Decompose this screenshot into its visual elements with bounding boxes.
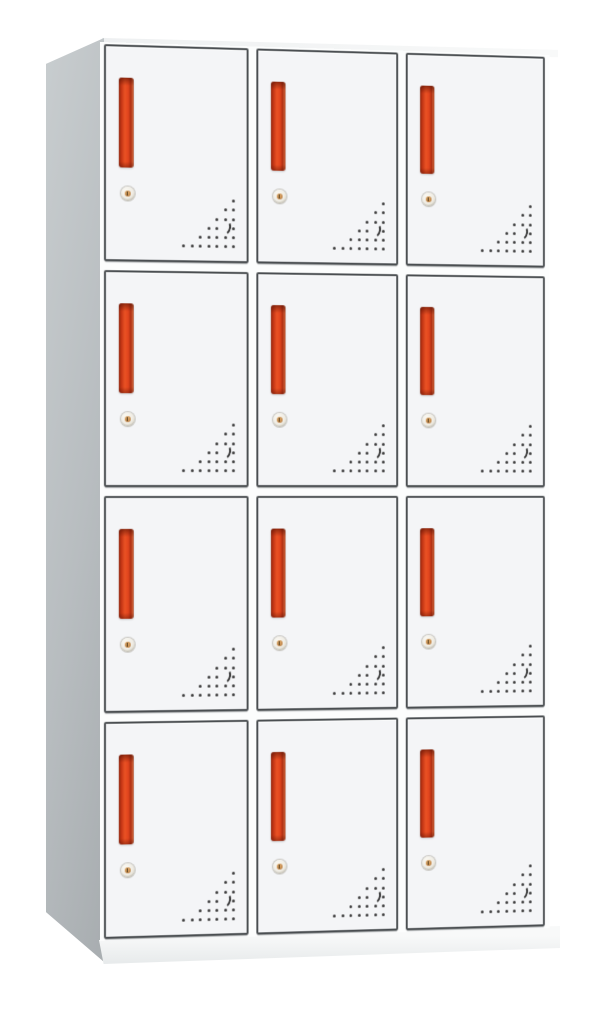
vent-hole-icon	[489, 690, 492, 693]
vent-hole-icon	[358, 469, 361, 472]
door-handle-icon	[420, 749, 434, 837]
vent-hole-icon	[349, 683, 352, 686]
vent-hole-large-icon	[516, 224, 529, 241]
vent-holes	[481, 425, 533, 474]
door-handle-icon	[420, 86, 434, 174]
vent-hole-icon	[232, 899, 235, 902]
vent-hole-icon	[199, 909, 202, 912]
vent-hole-icon	[182, 469, 185, 472]
vent-hole-icon	[215, 236, 218, 239]
vent-hole-icon	[513, 470, 516, 473]
vent-hole-icon	[374, 683, 377, 686]
vent-hole-icon	[489, 470, 492, 473]
keyhole-icon	[277, 417, 283, 423]
cam-lock-icon	[422, 856, 435, 870]
vent-hole-icon	[349, 905, 352, 908]
vent-hole-icon	[382, 682, 385, 685]
vent-hole-icon	[374, 877, 377, 880]
vent-hole-icon	[505, 249, 508, 252]
vent-hole-icon	[513, 241, 516, 244]
vent-hole-icon	[382, 887, 385, 890]
keyhole-icon	[277, 864, 283, 870]
vent-hole-icon	[182, 694, 185, 697]
vent-hole-icon	[349, 461, 352, 464]
vent-hole-icon	[366, 452, 369, 455]
vent-hole-icon	[529, 689, 532, 692]
vent-holes	[333, 201, 386, 251]
vent-hole-icon	[208, 227, 211, 230]
vent-hole-icon	[366, 674, 369, 677]
vent-hole-icon	[497, 461, 500, 464]
vent-hole-icon	[374, 461, 377, 464]
vent-hole-icon	[208, 451, 211, 454]
vent-hole-icon	[374, 211, 377, 214]
locker-cabinet-photo	[0, 0, 605, 1009]
vent-hole-icon	[224, 469, 227, 472]
vent-hole-icon	[513, 910, 516, 913]
vent-hole-icon	[232, 442, 235, 445]
vent-hole-icon	[481, 249, 484, 252]
vent-hole-icon	[366, 230, 369, 233]
vent-hole-icon	[215, 918, 218, 921]
vent-hole-icon	[382, 469, 385, 472]
vent-hole-icon	[358, 674, 361, 677]
vent-hole-icon	[529, 425, 532, 428]
vent-hole-icon	[208, 245, 211, 248]
vent-hole-icon	[232, 208, 235, 211]
locker-door-r2c2	[256, 272, 398, 487]
vent-hole-icon	[191, 694, 194, 697]
vent-hole-icon	[232, 460, 235, 463]
cabinet-side-panel	[46, 38, 104, 962]
vent-hole-icon	[529, 883, 532, 886]
vent-hole-icon	[215, 891, 218, 894]
vent-hole-icon	[215, 909, 218, 912]
vent-hole-icon	[382, 230, 385, 233]
vent-hole-icon	[382, 452, 385, 455]
locker-door-r1c3	[406, 53, 545, 268]
vent-hole-icon	[366, 914, 369, 917]
vent-hole-icon	[382, 913, 385, 916]
door-handle-icon	[271, 529, 286, 618]
vent-hole-icon	[382, 674, 385, 677]
keyhole-icon	[125, 190, 131, 196]
keyhole-icon	[277, 193, 283, 199]
cam-lock-icon	[273, 189, 287, 203]
vent-hole-icon	[215, 460, 218, 463]
vent-hole-icon	[224, 693, 227, 696]
vent-hole-icon	[191, 918, 194, 921]
vent-hole-icon	[208, 469, 211, 472]
vent-hole-large-icon	[369, 888, 383, 905]
vent-hole-icon	[349, 469, 352, 472]
vent-hole-icon	[208, 236, 211, 239]
vent-hole-icon	[382, 877, 385, 880]
locker-door-r3c1	[104, 496, 249, 713]
vent-hole-icon	[349, 692, 352, 695]
vent-hole-icon	[232, 648, 235, 651]
vent-hole-icon	[529, 470, 532, 473]
vent-hole-icon	[182, 919, 185, 922]
vent-hole-icon	[232, 684, 235, 687]
cabinet-front	[100, 42, 550, 941]
vent-hole-icon	[366, 469, 369, 472]
vent-hole-icon	[374, 433, 377, 436]
vent-hole-icon	[529, 672, 532, 675]
vent-hole-large-icon	[369, 444, 383, 461]
vent-hole-icon	[529, 224, 532, 227]
vent-hole-icon	[529, 214, 532, 217]
keyhole-icon	[426, 196, 432, 202]
locker-door-r4c1	[104, 720, 249, 939]
vent-hole-icon	[489, 249, 492, 252]
vent-hole-icon	[374, 469, 377, 472]
vent-hole-icon	[481, 910, 484, 913]
vent-hole-icon	[232, 218, 235, 221]
vent-hole-icon	[513, 901, 516, 904]
vent-hole-icon	[342, 692, 345, 695]
vent-hole-icon	[513, 232, 516, 235]
door-handle-icon	[119, 529, 134, 619]
vent-hole-icon	[529, 443, 532, 446]
vent-hole-icon	[224, 881, 227, 884]
locker-door-r2c3	[406, 274, 545, 487]
vent-hole-large-icon	[369, 666, 383, 683]
vent-hole-icon	[232, 227, 235, 230]
vent-hole-icon	[513, 883, 516, 886]
vent-hole-icon	[333, 692, 336, 695]
vent-hole-large-icon	[516, 884, 529, 901]
vent-hole-icon	[529, 232, 532, 235]
vent-hole-icon	[505, 470, 508, 473]
vent-hole-icon	[182, 244, 185, 247]
vent-hole-icon	[505, 232, 508, 235]
vent-hole-icon	[529, 250, 532, 253]
cam-lock-icon	[121, 638, 135, 652]
vent-hole-icon	[382, 424, 385, 427]
cam-lock-icon	[121, 186, 135, 200]
vent-hole-icon	[382, 239, 385, 242]
vent-hole-icon	[521, 241, 524, 244]
vent-hole-large-icon	[219, 892, 233, 909]
vent-hole-icon	[358, 914, 361, 917]
vent-hole-icon	[521, 873, 524, 876]
vent-holes	[333, 424, 386, 473]
vent-hole-icon	[366, 665, 369, 668]
vent-hole-icon	[224, 657, 227, 660]
vent-hole-icon	[497, 690, 500, 693]
vent-hole-icon	[513, 690, 516, 693]
keyhole-icon	[277, 640, 283, 646]
vent-hole-icon	[366, 247, 369, 250]
vent-hole-icon	[358, 905, 361, 908]
vent-hole-icon	[215, 900, 218, 903]
vent-hole-icon	[382, 443, 385, 446]
locker-door-r1c2	[256, 48, 398, 265]
vent-hole-icon	[232, 675, 235, 678]
vent-hole-icon	[505, 461, 508, 464]
door-handle-icon	[271, 752, 286, 841]
vent-hole-icon	[199, 694, 202, 697]
door-handle-icon	[271, 305, 286, 394]
vent-hole-icon	[374, 905, 377, 908]
cam-lock-icon	[422, 414, 435, 428]
locker-door-r4c2	[256, 718, 398, 935]
vent-hole-icon	[521, 250, 524, 253]
vent-hole-icon	[232, 881, 235, 884]
vent-hole-icon	[374, 239, 377, 242]
vent-hole-icon	[529, 873, 532, 876]
vent-hole-icon	[382, 461, 385, 464]
vent-hole-icon	[382, 221, 385, 224]
vent-hole-icon	[521, 434, 524, 437]
door-handle-icon	[271, 82, 286, 171]
vent-hole-icon	[208, 900, 211, 903]
vent-hole-large-icon	[369, 222, 383, 239]
vent-hole-large-icon	[516, 444, 529, 461]
vent-holes	[481, 645, 533, 694]
vent-hole-icon	[513, 892, 516, 895]
vent-hole-icon	[497, 681, 500, 684]
vent-hole-icon	[513, 461, 516, 464]
vent-hole-icon	[497, 470, 500, 473]
vent-hole-icon	[232, 469, 235, 472]
keyhole-icon	[426, 418, 432, 424]
vent-hole-icon	[333, 469, 336, 472]
vent-holes	[481, 204, 533, 254]
vent-hole-icon	[232, 666, 235, 669]
vent-hole-icon	[529, 434, 532, 437]
vent-hole-icon	[349, 914, 352, 917]
vent-hole-icon	[358, 247, 361, 250]
vent-hole-icon	[529, 205, 532, 208]
vent-hole-icon	[382, 248, 385, 251]
vent-hole-icon	[215, 693, 218, 696]
keyhole-icon	[125, 867, 131, 873]
vent-hole-icon	[232, 908, 235, 911]
vent-hole-icon	[208, 460, 211, 463]
vent-hole-icon	[342, 914, 345, 917]
vent-hole-icon	[366, 461, 369, 464]
vent-hole-icon	[224, 917, 227, 920]
vent-holes	[182, 872, 236, 923]
locker-door-r3c2	[256, 496, 398, 711]
vent-hole-icon	[358, 683, 361, 686]
vent-hole-icon	[505, 910, 508, 913]
vent-hole-icon	[529, 452, 532, 455]
vent-hole-icon	[366, 443, 369, 446]
locker-door-r4c3	[406, 715, 545, 930]
vent-hole-icon	[505, 681, 508, 684]
vent-hole-icon	[382, 895, 385, 898]
cam-lock-icon	[273, 413, 287, 427]
keyhole-icon	[426, 639, 432, 645]
vent-hole-icon	[232, 872, 235, 875]
vent-hole-icon	[358, 229, 361, 232]
vent-holes	[182, 199, 236, 250]
vent-hole-icon	[191, 244, 194, 247]
vent-hole-icon	[374, 691, 377, 694]
locker-door-r2c1	[104, 270, 249, 487]
vent-hole-icon	[382, 433, 385, 436]
keyhole-icon	[125, 416, 131, 422]
vent-hole-icon	[382, 211, 385, 214]
vent-hole-icon	[521, 214, 524, 217]
vent-hole-icon	[199, 918, 202, 921]
vent-hole-icon	[358, 238, 361, 241]
vent-hole-icon	[208, 918, 211, 921]
vent-hole-icon	[505, 901, 508, 904]
cam-lock-icon	[422, 635, 435, 649]
vent-hole-icon	[505, 452, 508, 455]
vent-hole-icon	[382, 868, 385, 871]
vent-hole-icon	[349, 247, 352, 250]
vent-hole-icon	[358, 692, 361, 695]
vent-hole-icon	[521, 470, 524, 473]
vent-hole-icon	[224, 236, 227, 239]
vent-hole-icon	[481, 690, 484, 693]
vent-hole-icon	[215, 469, 218, 472]
vent-hole-icon	[382, 665, 385, 668]
vent-hole-icon	[513, 681, 516, 684]
vent-hole-large-icon	[516, 664, 529, 681]
vent-hole-icon	[215, 676, 218, 679]
vent-hole-icon	[342, 469, 345, 472]
vent-hole-icon	[513, 443, 516, 446]
vent-hole-icon	[333, 914, 336, 917]
vent-hole-icon	[333, 247, 336, 250]
vent-hole-icon	[366, 905, 369, 908]
vent-hole-icon	[208, 909, 211, 912]
cam-lock-icon	[273, 636, 287, 650]
vent-hole-icon	[224, 245, 227, 248]
vent-hole-icon	[382, 646, 385, 649]
vent-holes	[333, 646, 386, 696]
vent-hole-icon	[358, 461, 361, 464]
vent-hole-icon	[199, 460, 202, 463]
vent-hole-icon	[232, 199, 235, 202]
vent-hole-icon	[521, 901, 524, 904]
vent-hole-icon	[513, 663, 516, 666]
vent-holes	[182, 423, 236, 473]
vent-hole-icon	[374, 247, 377, 250]
vent-hole-icon	[232, 917, 235, 920]
vent-hole-icon	[358, 896, 361, 899]
vent-hole-icon	[208, 676, 211, 679]
vent-hole-icon	[358, 452, 361, 455]
vent-hole-icon	[366, 238, 369, 241]
cam-lock-icon	[273, 860, 287, 874]
vent-hole-icon	[208, 694, 211, 697]
vent-hole-icon	[382, 691, 385, 694]
vent-hole-icon	[199, 245, 202, 248]
vent-hole-icon	[232, 424, 235, 427]
vent-hole-icon	[224, 208, 227, 211]
locker-door-r1c1	[104, 44, 249, 263]
vent-hole-icon	[382, 202, 385, 205]
keyhole-icon	[125, 642, 131, 648]
vent-hole-icon	[215, 227, 218, 230]
door-handle-icon	[119, 303, 134, 393]
vent-hole-icon	[497, 901, 500, 904]
vent-hole-icon	[529, 864, 532, 867]
vent-hole-icon	[232, 451, 235, 454]
cam-lock-icon	[121, 863, 135, 877]
vent-hole-icon	[232, 891, 235, 894]
vent-hole-icon	[232, 657, 235, 660]
vent-hole-icon	[505, 672, 508, 675]
vent-hole-icon	[521, 909, 524, 912]
vent-hole-icon	[529, 909, 532, 912]
vent-hole-icon	[224, 460, 227, 463]
vent-holes	[333, 868, 386, 919]
door-handle-icon	[119, 78, 134, 168]
vent-hole-icon	[215, 685, 218, 688]
vent-hole-icon	[481, 470, 484, 473]
vent-hole-icon	[232, 693, 235, 696]
vent-hole-large-icon	[219, 667, 233, 684]
vent-hole-icon	[497, 249, 500, 252]
vent-hole-icon	[521, 681, 524, 684]
vent-hole-icon	[489, 910, 492, 913]
vent-hole-icon	[224, 432, 227, 435]
vent-hole-icon	[497, 241, 500, 244]
door-handle-icon	[420, 528, 434, 616]
locker-door-r3c3	[406, 496, 545, 709]
vent-hole-icon	[366, 691, 369, 694]
vent-hole-icon	[505, 241, 508, 244]
door-handle-icon	[420, 307, 434, 395]
vent-hole-icon	[215, 218, 218, 221]
vent-hole-icon	[529, 645, 532, 648]
vent-hole-icon	[374, 655, 377, 658]
vent-hole-icon	[529, 681, 532, 684]
vent-hole-icon	[521, 689, 524, 692]
vent-hole-icon	[366, 221, 369, 224]
vent-hole-icon	[374, 913, 377, 916]
vent-hole-icon	[382, 904, 385, 907]
vent-hole-icon	[342, 247, 345, 250]
vent-hole-icon	[366, 887, 369, 890]
vent-hole-icon	[199, 685, 202, 688]
vent-holes	[182, 648, 236, 698]
vent-hole-icon	[513, 223, 516, 226]
door-handle-icon	[119, 754, 134, 844]
keyhole-icon	[426, 860, 432, 866]
vent-hole-icon	[199, 469, 202, 472]
vent-hole-icon	[224, 684, 227, 687]
vent-hole-icon	[521, 461, 524, 464]
vent-hole-icon	[529, 461, 532, 464]
vent-hole-icon	[497, 910, 500, 913]
vent-hole-icon	[224, 909, 227, 912]
vent-hole-icon	[513, 250, 516, 253]
vent-hole-icon	[366, 896, 369, 899]
vent-hole-icon	[529, 892, 532, 895]
vent-hole-icon	[529, 653, 532, 656]
cam-lock-icon	[422, 192, 435, 206]
vent-hole-icon	[215, 245, 218, 248]
vent-hole-icon	[513, 452, 516, 455]
vent-hole-icon	[232, 245, 235, 248]
vent-hole-icon	[191, 469, 194, 472]
vent-hole-icon	[382, 655, 385, 658]
vent-hole-icon	[232, 433, 235, 436]
vent-hole-icon	[513, 672, 516, 675]
vent-hole-large-icon	[219, 443, 233, 460]
vent-hole-icon	[529, 241, 532, 244]
vent-hole-icon	[529, 663, 532, 666]
